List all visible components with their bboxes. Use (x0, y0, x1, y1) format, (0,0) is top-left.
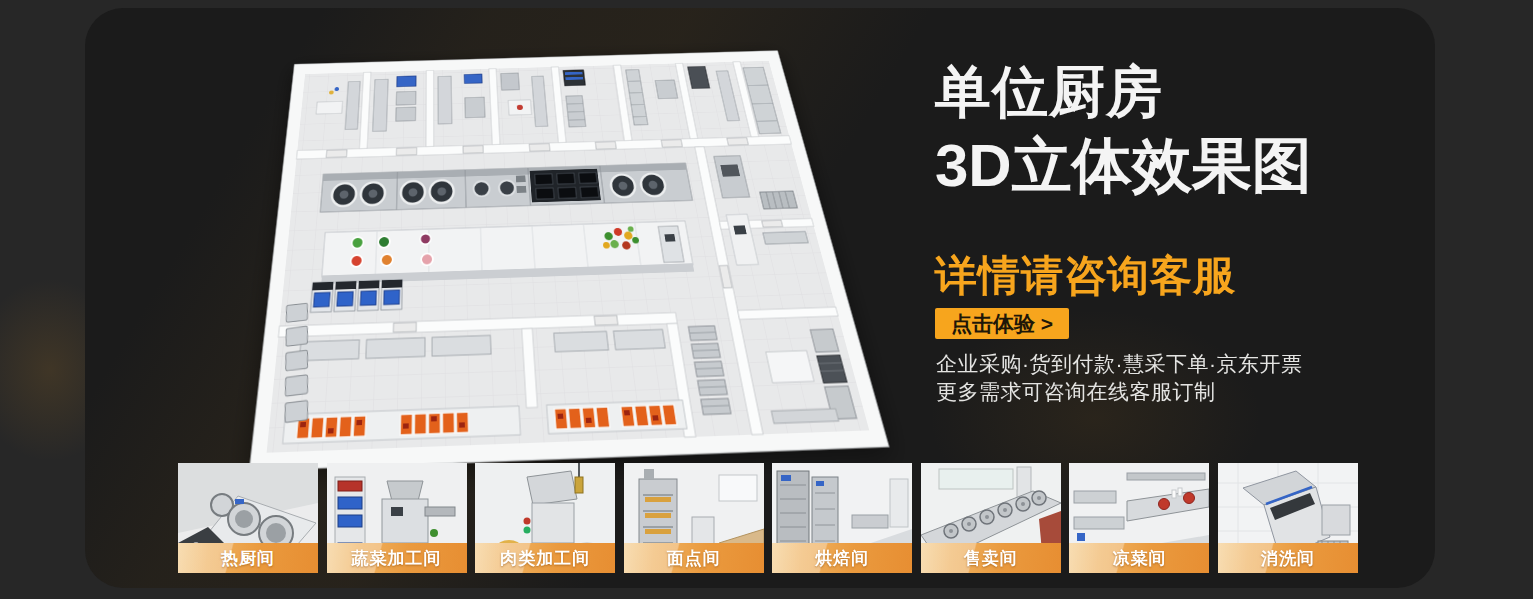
hero-subtitle: 详情请咨询客服 (935, 248, 1236, 304)
thumb-label-bar: 消洗间 (1218, 543, 1358, 573)
thumb-label-bar: 面点间 (624, 543, 764, 573)
thumb-label-text: 消洗间 (1261, 547, 1315, 570)
thumbnail-pastry[interactable]: 面点间 (624, 463, 764, 573)
thumbnail-washing[interactable]: 消洗间 (1218, 463, 1358, 573)
title-line-2: 3D立体效果图 (935, 136, 1312, 196)
thumb-label-bar: 凉菜间 (1069, 543, 1209, 573)
thumb-label-bar: 肉类加工间 (475, 543, 615, 573)
thumb-label-text: 热厨间 (221, 547, 275, 570)
thumb-label-text: 面点间 (667, 547, 721, 570)
thumbnail-baking[interactable]: 烘焙间 (772, 463, 912, 573)
title-line-1: 单位厨房 (935, 64, 1312, 120)
thumb-label-bar: 售卖间 (921, 543, 1061, 573)
cta-button[interactable]: 点击体验 > (935, 308, 1069, 339)
thumb-label-text: 肉类加工间 (500, 547, 590, 570)
thumb-label-text: 凉菜间 (1112, 547, 1166, 570)
room-thumbnails-row: 热厨间 蔬菜加工间 (178, 463, 1358, 573)
thumb-label-text: 蔬菜加工间 (352, 547, 442, 570)
thumb-label-bar: 蔬菜加工间 (327, 543, 467, 573)
hero-title: 单位厨房 3D立体效果图 (935, 64, 1312, 196)
description-line-2: 更多需求可咨询在线客服订制 (936, 378, 1302, 406)
thumb-label-text: 售卖间 (964, 547, 1018, 570)
thumbnail-vegetable-processing[interactable]: 蔬菜加工间 (327, 463, 467, 573)
description-line-1: 企业采购·货到付款·慧采下单·京东开票 (936, 350, 1302, 378)
thumbnail-hot-kitchen[interactable]: 热厨间 (178, 463, 318, 573)
thumbnail-cold-dish[interactable]: 凉菜间 (1069, 463, 1209, 573)
floorplan-ground-shadow (215, 385, 865, 475)
thumbnail-meat-processing[interactable]: 肉类加工间 (475, 463, 615, 573)
thumb-label-bar: 热厨间 (178, 543, 318, 573)
kitchen-banner-page: { "colors":{ "page_bg":"#272727", "card_… (0, 0, 1533, 599)
thumbnail-serving[interactable]: 售卖间 (921, 463, 1061, 573)
hero-description: 企业采购·货到付款·慧采下单·京东开票 更多需求可咨询在线客服订制 (936, 350, 1302, 405)
thumb-label-text: 烘焙间 (815, 547, 869, 570)
thumb-label-bar: 烘焙间 (772, 543, 912, 573)
